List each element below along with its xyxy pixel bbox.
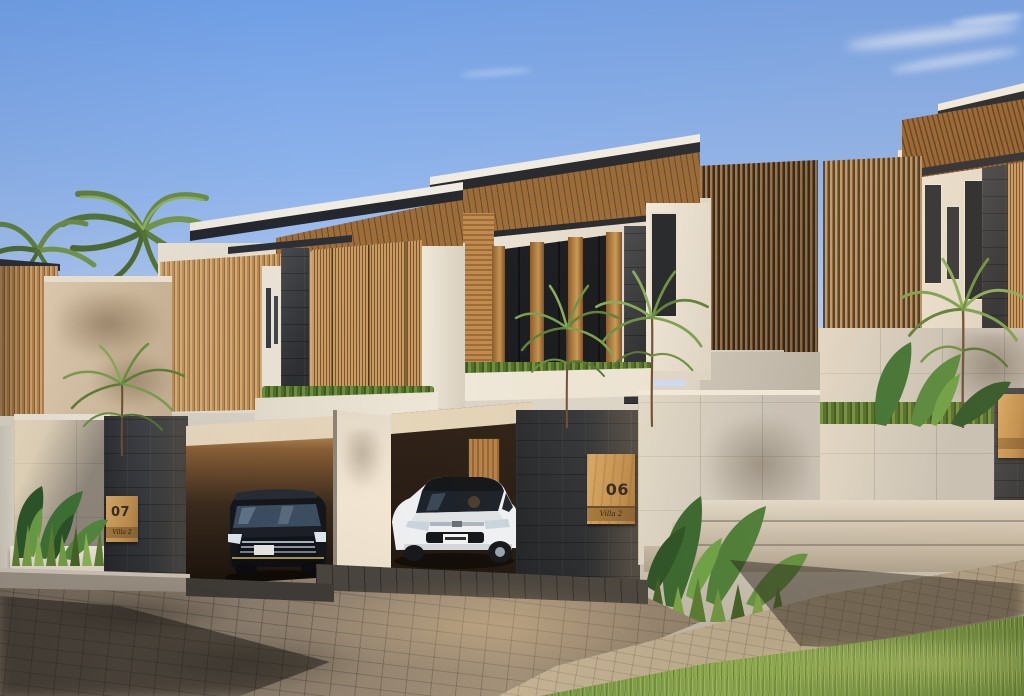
trunk [652,318,653,427]
suv-plate-text [445,537,466,540]
fern-tree-center-2 [592,252,712,427]
minivan-trim-accent [232,557,324,559]
big-leaves-right [856,324,1018,430]
suv-wheel [404,545,424,561]
suv-wheel-rim [495,547,505,557]
minivan-license-plate [254,545,274,555]
minivan-headlight [314,532,326,542]
villa-sign-caption-band-right [998,438,1024,449]
grass-tuft-left [8,520,110,566]
trunk [122,384,123,456]
leaf-shadow-on-blade-wall [340,430,384,490]
white-suv [386,464,524,570]
fronds [64,344,184,430]
villa07-wall-sliver [262,266,282,406]
trunk [567,328,568,428]
villa-exterior-scene: 07 Villa 2 [0,0,1024,696]
villa07-slim-window [274,296,278,344]
planter-wall-right [812,424,1024,508]
grass-sun-highlight [700,640,1024,696]
villa-number-07: 07 [111,506,130,519]
suv-logo [452,521,462,527]
villa06-louver-fin [492,246,505,374]
villa07-slim-window [266,288,271,348]
minivan-grille-bar [240,551,316,553]
minivan-grille-bar [242,541,314,543]
suv-roof [422,477,504,491]
suv-driver-silhouette [468,496,480,508]
minivan-grille-bar [241,546,315,548]
villa-caption-right [998,438,1024,441]
villa07-right-wall [422,246,465,408]
grass-blades [12,522,104,566]
minivan-wheel [235,563,257,575]
leaf [875,342,911,426]
leaf [951,382,1011,427]
fern-tree-left [52,336,192,456]
